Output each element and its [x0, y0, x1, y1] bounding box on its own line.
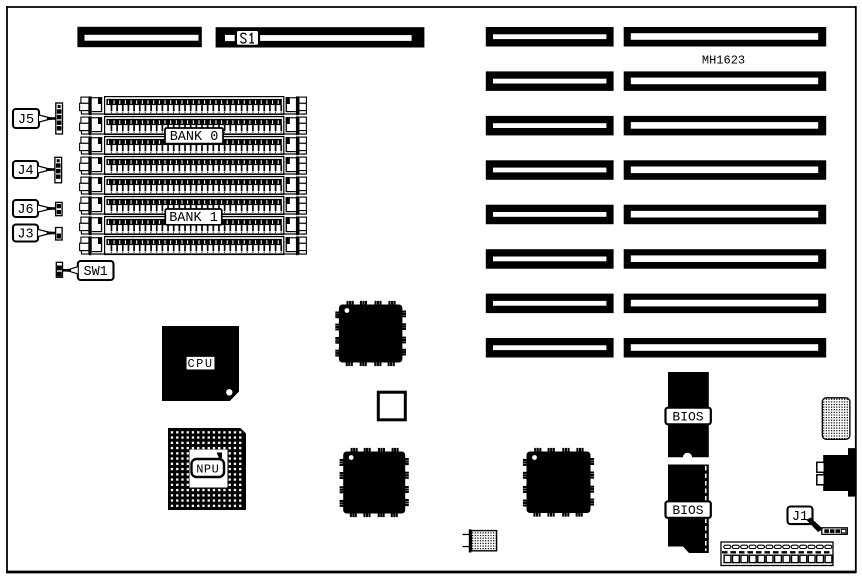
svg-text:MH1623: MH1623 — [702, 54, 745, 68]
svg-text:NPU: NPU — [196, 463, 219, 477]
svg-text:J3: J3 — [17, 228, 33, 243]
svg-text:BIOS: BIOS — [672, 503, 703, 518]
svg-text:BANK 1: BANK 1 — [169, 211, 218, 226]
svg-text:CPU: CPU — [187, 357, 213, 371]
svg-text:J6: J6 — [17, 203, 33, 218]
svg-text:J5: J5 — [18, 113, 34, 128]
svg-text:J1: J1 — [792, 510, 808, 525]
svg-text:SW1: SW1 — [83, 265, 107, 280]
svg-text:J4: J4 — [17, 164, 33, 179]
svg-text:BIOS: BIOS — [672, 409, 703, 424]
svg-text:BANK 0: BANK 0 — [170, 130, 219, 145]
